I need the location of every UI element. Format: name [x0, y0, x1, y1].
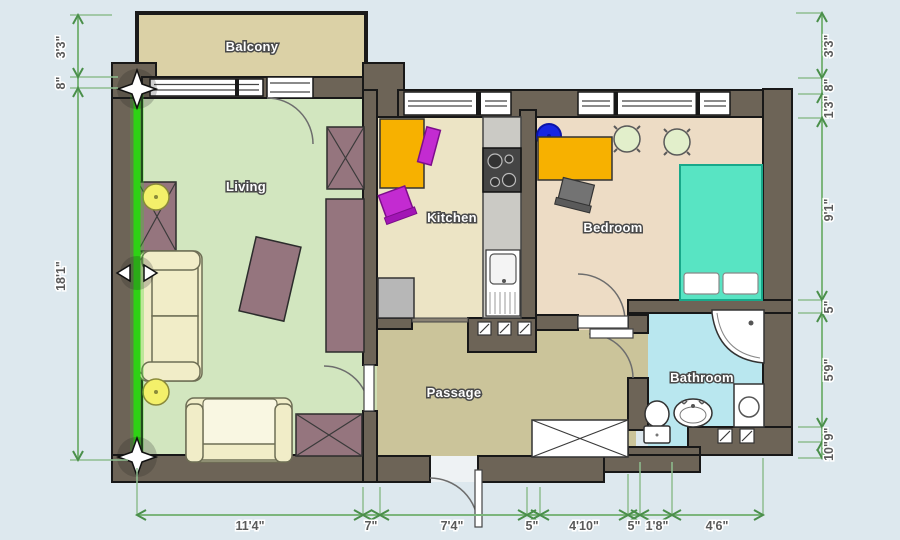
dim-label: 5"	[822, 300, 836, 313]
bedroom-passage-wall[interactable]	[536, 315, 578, 330]
lamp-center	[154, 390, 158, 394]
round-table	[664, 129, 690, 155]
kitchen-threshold	[412, 318, 468, 322]
wardrobe	[327, 127, 364, 189]
double-bed	[680, 165, 762, 300]
dim-label: 3'3"	[822, 35, 836, 58]
dim-label: 5"	[526, 519, 539, 533]
toilet	[644, 401, 670, 443]
desk	[538, 137, 612, 180]
vent-hatch-icon	[718, 429, 732, 443]
kitchen-label: Kitchen	[427, 210, 477, 225]
kitchen-window	[404, 92, 511, 115]
vent-hatch-icon	[518, 322, 531, 335]
dim-label: 7'4"	[441, 519, 464, 533]
kitchen-sink	[486, 250, 520, 316]
pillow	[684, 273, 719, 294]
bedroom-bathroom-wall[interactable]	[628, 300, 792, 313]
armchair	[186, 398, 292, 462]
bathroom-label: Bathroom	[670, 370, 734, 385]
sideboard	[326, 199, 364, 352]
dim-label: 5'9"	[822, 359, 836, 382]
vent-hatch-icon	[498, 322, 511, 335]
living-window	[150, 79, 263, 96]
dim-label: 18'1"	[54, 261, 68, 291]
passage-bottom-wall-right[interactable]	[478, 456, 604, 482]
right-outer-wall[interactable]	[763, 89, 792, 455]
lamp-center	[154, 195, 158, 199]
dim-label: 9"	[822, 427, 836, 440]
bathroom-wall-lower[interactable]	[628, 378, 648, 430]
dim-label: 4'6"	[706, 519, 729, 533]
dim-label: 1'3"	[822, 96, 836, 119]
vent-hatch-icon	[478, 322, 491, 335]
kitchen-stub-wall[interactable]	[377, 318, 412, 329]
washing-machine	[734, 384, 764, 427]
floor-plan-canvas: 3'3" 8" 18'1" 3'3" 8" 1'3" 9'1" 5" 5'9" …	[0, 0, 900, 540]
dim-label: 7"	[365, 519, 378, 533]
balcony-label: Balcony	[226, 39, 279, 54]
dim-label: 5"	[628, 519, 641, 533]
dim-label: 3'3"	[54, 36, 68, 59]
pillow	[723, 273, 758, 294]
bathroom-door-opening	[628, 333, 648, 378]
dining-table	[380, 119, 424, 188]
cabinet	[378, 278, 414, 318]
wash-basin	[674, 399, 712, 427]
living-label: Living	[226, 179, 266, 194]
dim-label: 8"	[822, 78, 836, 91]
bedroom-label: Bedroom	[583, 220, 642, 235]
vent-hatch-icon	[740, 429, 754, 443]
dim-label: 9'1"	[822, 199, 836, 222]
bedroom-window	[578, 92, 730, 115]
side-table	[296, 414, 362, 456]
dim-label: 10"	[822, 441, 836, 461]
floor-plan: 3'3" 8" 18'1" 3'3" 8" 1'3" 9'1" 5" 5'9" …	[0, 0, 900, 540]
passage-label: Passage	[427, 385, 482, 400]
stove	[483, 148, 521, 192]
built-in-closet[interactable]	[532, 420, 628, 457]
living-right-wall-lower[interactable]	[363, 411, 377, 482]
kitchen-bedroom-wall[interactable]	[520, 110, 536, 318]
dim-label: 4'10"	[569, 519, 599, 533]
dim-label: 8"	[54, 76, 68, 89]
round-table	[614, 126, 640, 152]
dim-label: 11'4"	[235, 519, 264, 533]
dim-label: 1'8"	[646, 519, 669, 533]
living-right-wall-upper[interactable]	[363, 90, 377, 365]
